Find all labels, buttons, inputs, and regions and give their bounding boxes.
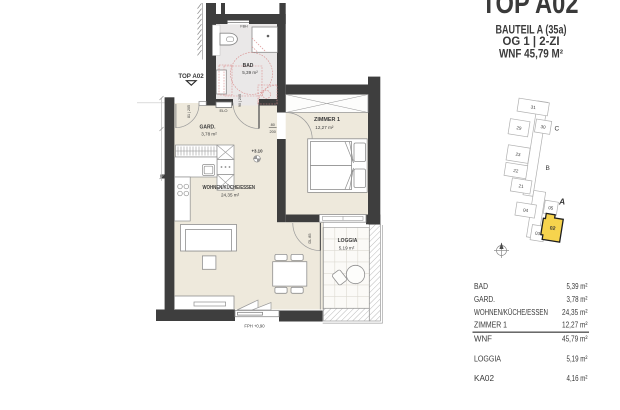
svg-text:BAD: BAD <box>474 281 488 291</box>
svg-text:OG 1 | 2-ZI: OG 1 | 2-ZI <box>503 36 560 48</box>
svg-text:ELO: ELO <box>219 108 227 113</box>
svg-text:WOHNEN/KÜCHE/ESSEN: WOHNEN/KÜCHE/ESSEN <box>474 307 548 317</box>
svg-text:GARD.: GARD. <box>474 294 495 304</box>
svg-text:KA02: KA02 <box>474 373 494 383</box>
svg-text:200: 200 <box>270 130 276 134</box>
svg-text:BAD: BAD <box>243 63 254 69</box>
svg-text:02: 02 <box>549 225 556 232</box>
svg-text:90 | 205: 90 | 205 <box>238 94 242 107</box>
svg-text:24,35 m²: 24,35 m² <box>562 307 588 317</box>
svg-text:24,35 m²: 24,35 m² <box>221 193 240 198</box>
svg-text:5,19 m²: 5,19 m² <box>339 246 355 251</box>
svg-text:12,27 m²: 12,27 m² <box>315 125 334 130</box>
svg-text:FBH: FBH <box>240 24 248 28</box>
svg-text:BAUTEIL A (35a): BAUTEIL A (35a) <box>496 25 567 37</box>
svg-text:4,16 m²: 4,16 m² <box>567 373 588 383</box>
svg-text:81 | 205: 81 | 205 <box>187 105 191 118</box>
svg-text:LOGGIA: LOGGIA <box>338 238 358 244</box>
svg-text:A: A <box>558 197 565 207</box>
svg-text:TOP A02: TOP A02 <box>482 0 579 20</box>
svg-text:WOHNEN/KÜCHE/ESSEN: WOHNEN/KÜCHE/ESSEN <box>203 184 256 191</box>
svg-text:DL 85: DL 85 <box>308 234 312 244</box>
svg-text:3,78 m²: 3,78 m² <box>567 294 588 304</box>
svg-text:80: 80 <box>271 123 275 127</box>
svg-text:ZIMMER 1: ZIMMER 1 <box>314 117 340 123</box>
svg-text:LOGGIA: LOGGIA <box>474 354 501 364</box>
svg-text:B: B <box>546 165 550 172</box>
svg-text:12,27 m²: 12,27 m² <box>562 320 588 330</box>
svg-text:5,19 m²: 5,19 m² <box>567 354 588 364</box>
svg-text:3,78 m²: 3,78 m² <box>201 132 217 137</box>
svg-text:C: C <box>555 126 560 133</box>
svg-text:5,39 m²: 5,39 m² <box>242 70 258 75</box>
svg-text:WNF 45,79 M²: WNF 45,79 M² <box>499 49 563 61</box>
svg-text:TOP A02: TOP A02 <box>178 73 204 80</box>
svg-text:45,79 m²: 45,79 m² <box>562 334 588 344</box>
svg-text:GARD.: GARD. <box>199 125 216 131</box>
svg-text:FPH +0,90: FPH +0,90 <box>244 324 265 329</box>
svg-text:5,39 m²: 5,39 m² <box>567 281 588 291</box>
svg-text:WNF: WNF <box>474 334 492 344</box>
svg-text:ZIMMER 1: ZIMMER 1 <box>474 320 507 330</box>
svg-text:+3.10: +3.10 <box>251 149 263 154</box>
